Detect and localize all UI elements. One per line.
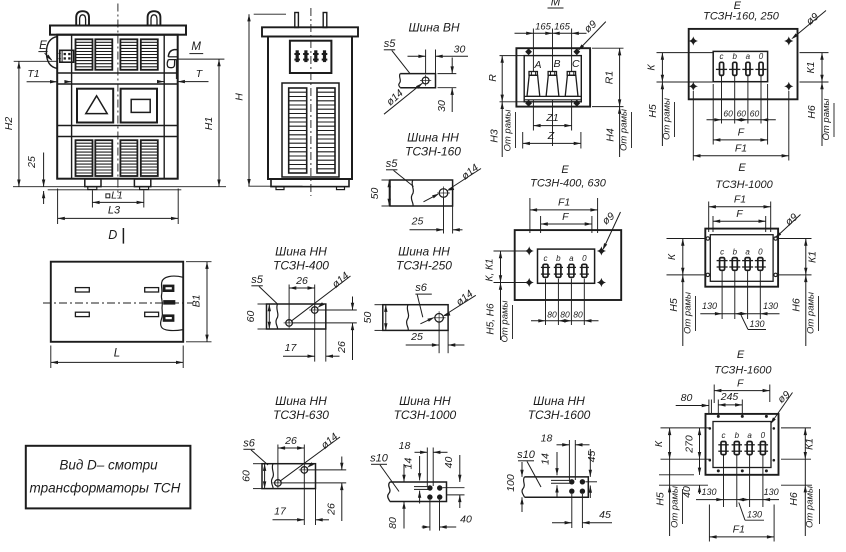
svg-text:E: E — [39, 40, 47, 52]
svg-text:H1: H1 — [203, 117, 215, 130]
svg-text:b: b — [733, 247, 738, 256]
svg-text:26: 26 — [325, 503, 337, 516]
svg-text:26: 26 — [336, 341, 348, 354]
svg-text:L: L — [114, 348, 120, 360]
svg-text:F1: F1 — [734, 194, 746, 206]
svg-text:50: 50 — [362, 312, 374, 324]
svg-text:C: C — [572, 58, 580, 70]
svg-text:80: 80 — [560, 309, 570, 319]
svg-text:18: 18 — [399, 440, 411, 452]
svg-text:К: К — [646, 64, 658, 71]
svg-text:T1: T1 — [27, 68, 39, 80]
svg-text:40: 40 — [443, 457, 455, 469]
svg-text:270: 270 — [684, 435, 696, 454]
svg-text:От рамы: От рамы — [619, 109, 630, 151]
svg-text:ТСЗН-250: ТСЗН-250 — [396, 259, 452, 273]
svg-text:b: b — [732, 52, 737, 61]
svg-text:A: A — [533, 59, 541, 71]
svg-text:s5: s5 — [251, 274, 264, 286]
svg-text:ø9: ø9 — [783, 211, 800, 228]
svg-text:130: 130 — [747, 510, 762, 520]
svg-text:60: 60 — [723, 108, 733, 118]
svg-text:b: b — [556, 254, 561, 263]
svg-text:ø14: ø14 — [459, 162, 481, 183]
svg-text:ø9: ø9 — [804, 11, 821, 28]
svg-text:Шина НН: Шина НН — [275, 394, 327, 408]
svg-text:ТСЗН-400, 630: ТСЗН-400, 630 — [530, 177, 607, 189]
svg-text:Шина НН: Шина НН — [398, 245, 450, 259]
svg-text:ТСЗН-1000: ТСЗН-1000 — [394, 408, 457, 422]
svg-text:80: 80 — [547, 309, 557, 319]
svg-text:Н6: Н6 — [806, 105, 818, 119]
svg-text:25: 25 — [410, 331, 423, 343]
svg-text:0: 0 — [758, 247, 763, 256]
svg-text:14: 14 — [540, 453, 552, 465]
svg-text:ТСЗН-160, 250: ТСЗН-160, 250 — [703, 10, 780, 22]
svg-text:F: F — [736, 208, 743, 220]
svg-text:c: c — [722, 431, 726, 440]
svg-text:ТСЗН-400: ТСЗН-400 — [273, 259, 329, 273]
svg-text:60: 60 — [241, 470, 253, 482]
svg-text:60: 60 — [245, 311, 257, 323]
svg-text:50: 50 — [369, 188, 381, 200]
svg-text:ø9: ø9 — [582, 18, 599, 35]
svg-text:80: 80 — [681, 392, 693, 404]
svg-text:130: 130 — [764, 487, 779, 497]
svg-text:ø14: ø14 — [330, 270, 352, 291]
svg-text:c: c — [720, 52, 724, 61]
svg-text:Z1: Z1 — [545, 112, 558, 124]
svg-text:165: 165 — [535, 22, 552, 33]
svg-text:45: 45 — [586, 451, 598, 463]
svg-text:s10: s10 — [517, 449, 536, 461]
svg-text:Н5, Н6: Н5, Н6 — [486, 303, 497, 335]
svg-text:Шина ВН: Шина ВН — [409, 21, 460, 35]
svg-text:26: 26 — [284, 435, 297, 447]
svg-text:К, К1: К, К1 — [485, 259, 496, 282]
svg-text:ТСЗН-1000: ТСЗН-1000 — [715, 179, 773, 191]
svg-text:a: a — [745, 247, 750, 256]
svg-text:25: 25 — [411, 216, 424, 228]
svg-text:100: 100 — [505, 474, 517, 492]
svg-text:Шина НН: Шина НН — [407, 131, 459, 145]
svg-text:a: a — [569, 254, 574, 263]
svg-text:От рамы: От рамы — [683, 292, 694, 334]
svg-text:F: F — [562, 211, 569, 223]
svg-text:H3: H3 — [489, 129, 501, 143]
svg-text:Шина НН: Шина НН — [275, 245, 327, 259]
svg-text:80: 80 — [387, 517, 399, 529]
svg-text:Н5: Н5 — [655, 492, 667, 506]
svg-text:18: 18 — [541, 433, 553, 445]
svg-text:Е: Е — [737, 349, 745, 361]
svg-text:R: R — [487, 74, 499, 82]
svg-text:F1: F1 — [558, 196, 570, 208]
svg-text:40: 40 — [460, 514, 472, 526]
svg-text:ТСЗН-160: ТСЗН-160 — [405, 145, 461, 159]
svg-text:a: a — [746, 52, 751, 61]
svg-text:От рамы: От рамы — [821, 98, 832, 140]
svg-text:Н6: Н6 — [788, 492, 800, 506]
svg-text:60: 60 — [737, 108, 747, 118]
svg-text:От рамы: От рамы — [805, 486, 816, 528]
svg-text:30: 30 — [436, 100, 448, 112]
svg-text:Шина НН: Шина НН — [533, 394, 585, 408]
svg-text:L3: L3 — [108, 204, 121, 216]
svg-text:0: 0 — [759, 52, 764, 61]
svg-text:165: 165 — [554, 22, 571, 33]
svg-text:ТСЗН-1600: ТСЗН-1600 — [714, 365, 772, 377]
svg-text:B1: B1 — [191, 295, 203, 308]
svg-text:130: 130 — [763, 301, 778, 311]
svg-text:Вид D– смотри: Вид D– смотри — [59, 458, 158, 473]
svg-text:F1: F1 — [733, 524, 745, 536]
svg-text:a: a — [747, 431, 752, 440]
svg-text:ø9: ø9 — [776, 389, 793, 406]
svg-text:Н6: Н6 — [791, 298, 803, 312]
svg-text:H4: H4 — [605, 128, 617, 142]
svg-text:s5: s5 — [384, 38, 397, 50]
svg-text:D: D — [108, 228, 117, 242]
svg-text:От рамы: От рамы — [500, 300, 511, 342]
svg-text:0: 0 — [582, 254, 587, 263]
svg-text:s10: s10 — [370, 453, 389, 465]
svg-text:Шина НН: Шина НН — [399, 394, 451, 408]
svg-text:ТСЗН-630: ТСЗН-630 — [273, 408, 329, 422]
svg-text:0: 0 — [761, 431, 766, 440]
svg-text:26: 26 — [295, 275, 308, 287]
svg-text:130: 130 — [749, 319, 764, 329]
svg-text:c: c — [544, 254, 548, 263]
svg-text:К: К — [666, 253, 678, 260]
svg-text:Z: Z — [547, 130, 555, 142]
svg-text:H: H — [234, 93, 246, 101]
svg-text:30: 30 — [454, 44, 466, 56]
svg-text:M: M — [551, 0, 561, 9]
svg-text:130: 130 — [702, 301, 717, 311]
svg-text:T: T — [196, 68, 204, 80]
svg-text:От рамы: От рамы — [806, 292, 817, 334]
svg-text:К: К — [653, 440, 665, 447]
svg-text:ø14: ø14 — [319, 431, 341, 452]
svg-text:F: F — [738, 126, 745, 138]
svg-text:Н5: Н5 — [668, 298, 680, 312]
svg-text:B: B — [553, 58, 560, 70]
svg-text:s6: s6 — [415, 282, 428, 294]
svg-text:R1: R1 — [604, 71, 616, 84]
svg-text:60: 60 — [750, 108, 760, 118]
svg-text:От рамы: От рамы — [670, 486, 681, 528]
svg-text:F1: F1 — [735, 142, 747, 154]
svg-text:130: 130 — [701, 487, 716, 497]
svg-text:L1: L1 — [111, 189, 123, 201]
svg-text:От рамы: От рамы — [662, 98, 673, 140]
svg-text:К1: К1 — [804, 438, 816, 450]
svg-text:s6: s6 — [243, 438, 256, 450]
svg-text:245: 245 — [720, 391, 739, 403]
svg-text:b: b — [735, 431, 740, 440]
svg-text:Н5: Н5 — [647, 104, 659, 118]
svg-text:От рамы: От рамы — [503, 109, 514, 151]
svg-text:К1: К1 — [805, 61, 817, 73]
svg-text:ТСЗН-1600: ТСЗН-1600 — [528, 408, 591, 422]
svg-text:17: 17 — [274, 506, 287, 518]
svg-text:Е: Е — [561, 164, 569, 176]
svg-text:c: c — [720, 247, 724, 256]
svg-text:M: M — [191, 41, 201, 53]
svg-text:Е: Е — [738, 162, 746, 174]
svg-text:s5: s5 — [386, 158, 399, 170]
svg-text:25: 25 — [26, 156, 38, 169]
svg-text:К1: К1 — [807, 251, 819, 263]
svg-text:45: 45 — [599, 509, 611, 521]
svg-text:трансформаторы ТСН: трансформаторы ТСН — [30, 481, 181, 496]
svg-text:F: F — [737, 377, 744, 389]
svg-text:17: 17 — [285, 342, 298, 354]
svg-text:80: 80 — [573, 309, 583, 319]
svg-text:H2: H2 — [3, 117, 15, 131]
